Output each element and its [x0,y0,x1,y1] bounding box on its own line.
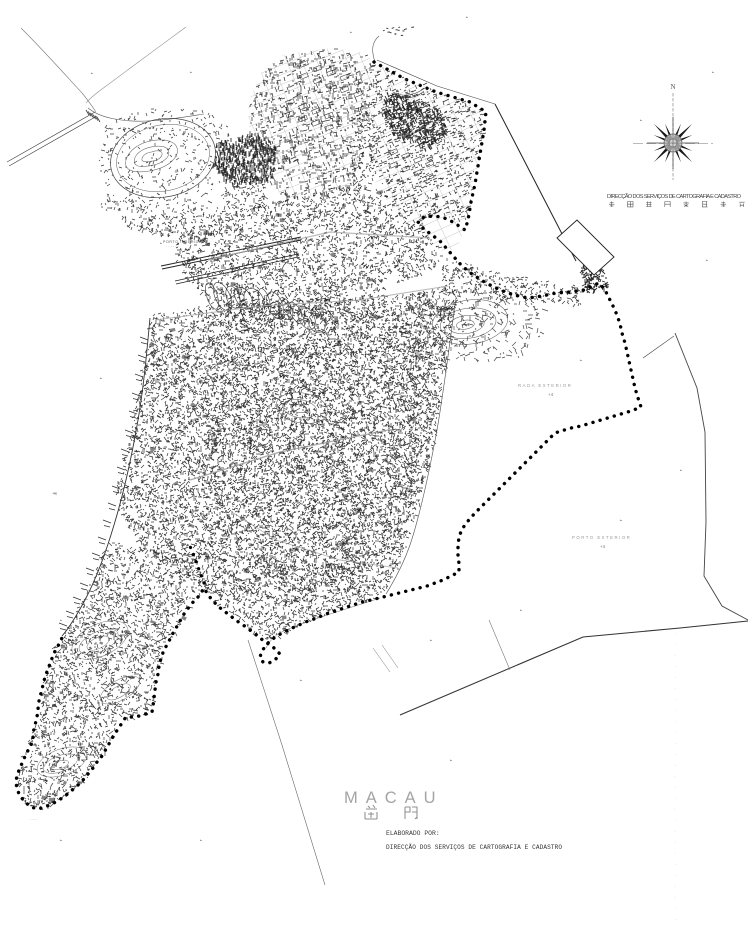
svg-text:+4: +4 [548,392,554,397]
svg-text:PORTO EXTERIOR: PORTO EXTERIOR [572,535,631,540]
svg-text:DIRECÇÃO DOS SERVIÇOS DE CARTO: DIRECÇÃO DOS SERVIÇOS DE CARTOGRAFIA E C… [386,844,562,851]
svg-text:+4: +4 [600,544,606,549]
svg-text:······: ······ [166,245,180,249]
svg-text:+4: +4 [52,491,57,496]
svg-text:N: N [670,83,675,91]
svg-text:.: . [672,121,673,125]
svg-text:ELABORADO POR:: ELABORADO POR: [386,830,440,837]
svg-text:- ... -: - ... - [30,817,37,821]
svg-text:RADA EXTERIOR: RADA EXTERIOR [518,383,572,388]
svg-text:MACAU: MACAU [344,789,444,807]
svg-text:PORTO INTERIOR: PORTO INTERIOR [163,240,202,244]
svg-text:DIRECÇÃO DOS SERVIÇOS DE CARTO: DIRECÇÃO DOS SERVIÇOS DE CARTOGRAFIA E C… [607,193,742,200]
